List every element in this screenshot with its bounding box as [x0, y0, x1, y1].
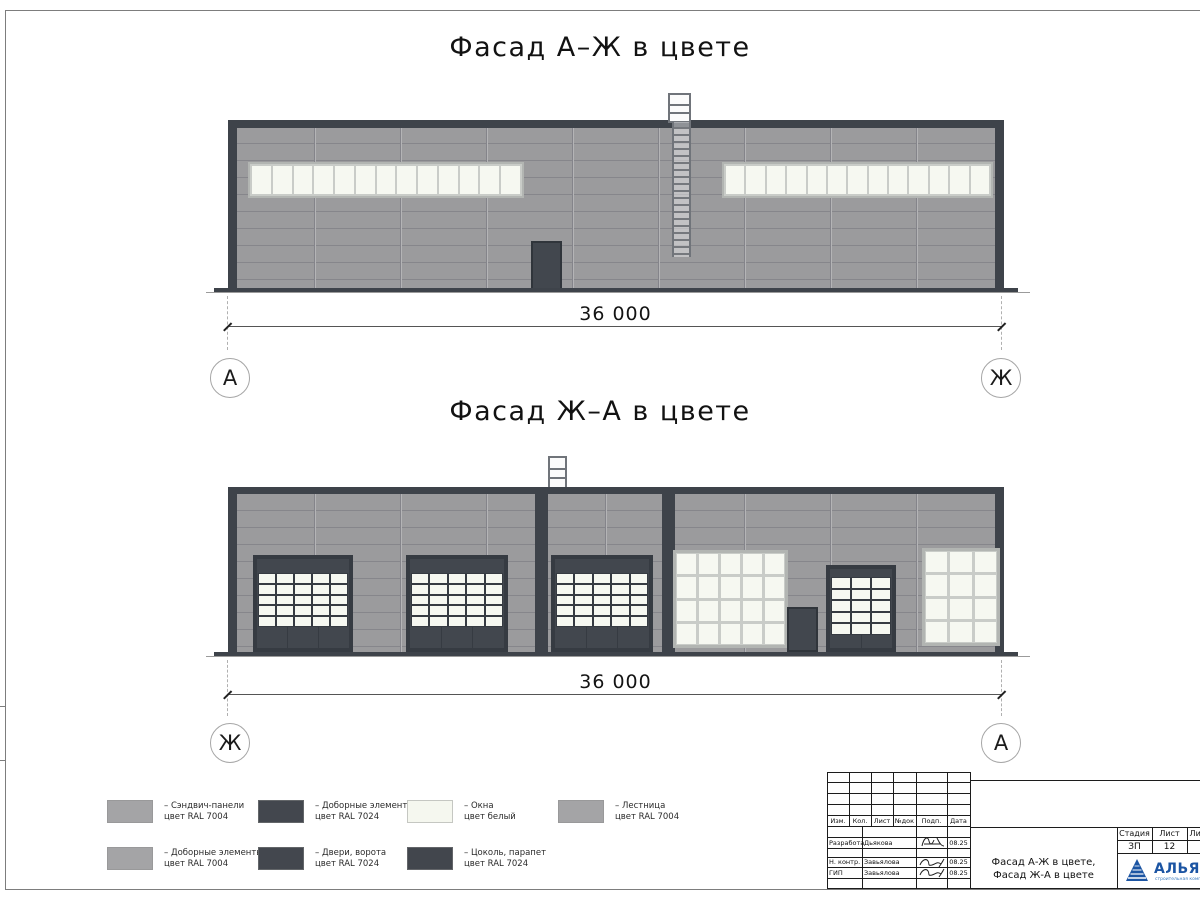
legend-label: – Цоколь, парапетцвет RAL 7024	[464, 847, 546, 870]
axis-letter: Ж	[990, 366, 1013, 390]
window-pane	[926, 622, 947, 642]
window-pane	[765, 577, 784, 597]
window-pane	[486, 585, 502, 594]
window-pane	[412, 606, 428, 615]
panel-joint	[658, 127, 660, 292]
stamp-line	[970, 780, 1200, 781]
parapet	[228, 120, 1004, 128]
window-pane	[612, 574, 628, 583]
window-pane	[594, 585, 610, 594]
axis-circle-zh: Ж	[210, 723, 250, 763]
panel-joint	[916, 127, 918, 292]
window-pane	[677, 577, 696, 597]
window-pane	[950, 622, 971, 642]
ground-line	[206, 292, 1030, 293]
facade-top-title: Фасад А–Ж в цвете	[0, 32, 1200, 63]
window-pane	[294, 166, 313, 194]
legend-label: – Доборные элементыцвет RAL 7004	[164, 847, 263, 870]
rev-col-doc: №док	[893, 815, 916, 826]
window-pane	[872, 613, 890, 623]
window-pane	[975, 552, 996, 572]
window-pane	[828, 166, 846, 194]
dimension-line	[227, 326, 1002, 327]
window-pane	[746, 166, 764, 194]
window-pane	[575, 617, 591, 626]
rev-col-data: Дата	[947, 815, 970, 826]
window-pane	[631, 574, 647, 583]
window-pane	[677, 601, 696, 621]
color-swatch	[407, 847, 453, 870]
dimension-value: 36 000	[228, 303, 1003, 325]
window-pane	[872, 601, 890, 611]
window-pane	[277, 585, 293, 594]
window-pane	[313, 574, 329, 583]
legend-item: – Доборные элементыцвет RAL 7024	[258, 800, 414, 823]
stamp-line	[1117, 853, 1200, 854]
window-pane	[480, 166, 499, 194]
person-name: Дьякова	[862, 837, 918, 848]
gate-bottom-panel	[410, 627, 504, 648]
window-pane	[594, 574, 610, 583]
dimension-value: 36 000	[228, 671, 1003, 693]
window-pane	[699, 624, 718, 644]
stamp-line	[827, 878, 970, 879]
color-swatch	[558, 800, 604, 823]
sheet-value: 12	[1152, 840, 1187, 853]
entrance-door	[531, 241, 562, 292]
window-pane	[852, 590, 870, 600]
drawing-sheet: Фасад А–Ж в цвете Фасад Ж–А в цвете 36 0…	[0, 0, 1200, 900]
roof-ladder-cage	[548, 456, 567, 489]
gate-top-panel	[830, 569, 892, 577]
window-pane	[277, 606, 293, 615]
window-pane	[252, 166, 271, 194]
legend-item: – Двери, воротацвет RAL 7024	[258, 847, 386, 870]
window-pane	[331, 585, 347, 594]
person-name: Завьялова	[862, 867, 918, 878]
window-pane	[449, 596, 465, 605]
window-pane	[331, 574, 347, 583]
window-pane	[869, 166, 887, 194]
window-pane	[677, 554, 696, 574]
color-swatch	[258, 847, 304, 870]
window-pane	[295, 574, 311, 583]
gate-top-panel	[257, 559, 349, 573]
corner-pilaster	[228, 487, 237, 652]
window-pane	[575, 606, 591, 615]
window-pane	[832, 624, 850, 634]
parapet	[228, 487, 1004, 494]
legend-item: – Лестницацвет RAL 7004	[558, 800, 679, 823]
roof-ladder	[672, 122, 691, 257]
window-pane	[501, 166, 520, 194]
window-pane	[331, 596, 347, 605]
legend-item: – Сэндвич-панелицвет RAL 7004	[107, 800, 244, 823]
panel-joint	[916, 494, 918, 652]
window-pane	[486, 574, 502, 583]
roof-ladder-cage	[668, 93, 691, 123]
window-pane	[699, 601, 718, 621]
window-pane	[872, 624, 890, 634]
stamp-line	[827, 888, 1200, 889]
sectional-gate-1	[253, 555, 353, 652]
window-pane	[631, 606, 647, 615]
color-swatch	[407, 800, 453, 823]
window-pane	[852, 601, 870, 611]
frame-tick	[0, 760, 5, 761]
window-pane	[430, 606, 446, 615]
ribbon-window-left	[248, 162, 524, 198]
window-pane	[412, 596, 428, 605]
window-pane	[460, 166, 479, 194]
window-pane	[852, 613, 870, 623]
window-pane	[631, 585, 647, 594]
dimension-line	[227, 694, 1002, 695]
panel-joint	[400, 494, 402, 652]
window-pane	[449, 585, 465, 594]
window-pane	[430, 585, 446, 594]
panel-joint	[314, 127, 316, 292]
window-pane	[314, 166, 333, 194]
gate-glazing	[556, 573, 648, 627]
rev-col-podp: Подп.	[916, 815, 947, 826]
window-pane	[767, 166, 785, 194]
window-pane	[950, 552, 971, 572]
window-pane	[612, 617, 628, 626]
window-pane	[594, 606, 610, 615]
window-pane	[721, 624, 740, 644]
window-pane	[467, 617, 483, 626]
window-pane	[975, 575, 996, 595]
window-pane	[852, 578, 870, 588]
window-pane	[449, 574, 465, 583]
window-pane	[449, 606, 465, 615]
window-pane	[486, 617, 502, 626]
window-pane	[486, 596, 502, 605]
window-pane	[721, 601, 740, 621]
frame-top-line	[5, 10, 1200, 11]
wall-panels	[228, 120, 1004, 292]
legend-label: – Окнацвет белый	[464, 800, 516, 823]
window-pane	[557, 585, 573, 594]
window-pane	[356, 166, 375, 194]
corner-pilaster	[228, 120, 237, 292]
window-pane	[313, 585, 329, 594]
window-pane	[594, 596, 610, 605]
ground-line	[206, 656, 1030, 657]
signature	[918, 867, 946, 878]
small-gate	[826, 565, 896, 652]
window-pane	[259, 574, 275, 583]
signature	[918, 834, 946, 850]
window-pane	[612, 596, 628, 605]
window-pane	[295, 606, 311, 615]
window-pane	[295, 585, 311, 594]
window-pane	[950, 166, 968, 194]
gate-bottom-panel	[257, 627, 349, 648]
window-pane	[975, 622, 996, 642]
panel-joint	[572, 127, 574, 292]
stage-label: Стадия	[1117, 827, 1152, 840]
panel-joint	[830, 127, 832, 292]
panel-joint	[400, 127, 402, 292]
frame-bottom-line	[5, 889, 1200, 890]
rev-col-list: Лист	[871, 815, 893, 826]
window-pane	[612, 606, 628, 615]
window-pane	[743, 577, 762, 597]
window-pane	[699, 554, 718, 574]
window-pane	[575, 596, 591, 605]
window-pane	[430, 617, 446, 626]
tall-window	[922, 548, 1000, 646]
entrance-door	[787, 607, 818, 652]
window-pane	[467, 585, 483, 594]
window-pane	[971, 166, 989, 194]
company-logo-icon	[1125, 858, 1149, 882]
window-pane	[889, 166, 907, 194]
window-pane	[765, 554, 784, 574]
window-pane	[313, 606, 329, 615]
rev-col-izm: Изм.	[827, 815, 849, 826]
window-pane	[575, 585, 591, 594]
window-pane	[439, 166, 458, 194]
window-pane	[259, 596, 275, 605]
window-pane	[412, 585, 428, 594]
window-pane	[259, 585, 275, 594]
window-pane	[808, 166, 826, 194]
window-pane	[467, 606, 483, 615]
axis-letter: А	[994, 731, 1008, 755]
gate-bottom-panel	[555, 627, 649, 648]
window-pane	[277, 574, 293, 583]
legend-label: – Двери, воротацвет RAL 7024	[315, 847, 386, 870]
sign-date: 08.25	[947, 837, 970, 848]
window-pane	[295, 596, 311, 605]
gate-glazing	[411, 573, 503, 627]
window-pane	[743, 624, 762, 644]
window-pane	[430, 596, 446, 605]
window-pane	[852, 624, 870, 634]
sheet-label: Лист	[1152, 827, 1187, 840]
window-pane	[612, 585, 628, 594]
ribbon-window-right	[722, 162, 993, 198]
role-label: Разработал	[827, 837, 864, 848]
window-pane	[430, 574, 446, 583]
window-pane	[926, 552, 947, 572]
facade-a-zh	[228, 120, 1004, 292]
window-pane	[412, 574, 428, 583]
window-pane	[950, 575, 971, 595]
legend-item: – Цоколь, парапетцвет RAL 7024	[407, 847, 546, 870]
window-pane	[418, 166, 437, 194]
window-pane	[259, 617, 275, 626]
axis-circle-a: А	[981, 723, 1021, 763]
stamp-line	[970, 772, 971, 889]
window-pane	[832, 590, 850, 600]
window-pane	[926, 599, 947, 619]
window-pane	[926, 575, 947, 595]
gate-bottom-panel	[830, 635, 892, 648]
frame-left-line	[5, 10, 6, 889]
window-pane	[273, 166, 292, 194]
window-pane	[909, 166, 927, 194]
company-logo-text: АЛЬЯНС	[1154, 861, 1200, 877]
doc-title: Фасад А-Ж в цвете, Фасад Ж-А в цвете	[972, 856, 1115, 882]
window-pane	[557, 606, 573, 615]
stamp-line	[827, 848, 970, 849]
role-label: Н. контр.	[827, 857, 864, 867]
window-pane	[721, 577, 740, 597]
window-pane	[872, 590, 890, 600]
window-pane	[594, 617, 610, 626]
rev-col-kol: Кол.	[849, 815, 871, 826]
axis-circle-a: А	[210, 358, 250, 398]
window-pane	[335, 166, 354, 194]
axis-letter: Ж	[219, 731, 242, 755]
gate-top-panel	[410, 559, 504, 573]
window-pane	[467, 596, 483, 605]
person-name: Завьялова	[862, 857, 918, 867]
window-pane	[832, 613, 850, 623]
window-pane	[259, 606, 275, 615]
facade-bottom-title: Фасад Ж–А в цвете	[0, 396, 1200, 427]
corner-pilaster	[995, 120, 1004, 292]
color-swatch	[258, 800, 304, 823]
stage-value: ЗП	[1117, 840, 1152, 853]
window-pane	[377, 166, 396, 194]
window-pane	[575, 574, 591, 583]
company-logo-tagline: строительная компания	[1155, 877, 1200, 882]
color-swatch	[107, 800, 153, 823]
axis-letter: А	[223, 366, 237, 390]
window-pane	[331, 606, 347, 615]
legend-item: – Доборные элементыцвет RAL 7004	[107, 847, 263, 870]
window-pane	[950, 599, 971, 619]
window-pane	[295, 617, 311, 626]
panel-joint	[486, 127, 488, 292]
window-pane	[277, 617, 293, 626]
window-pane	[557, 596, 573, 605]
window-pane	[721, 554, 740, 574]
legend-label: – Доборные элементыцвет RAL 7024	[315, 800, 414, 823]
facade-zh-a	[228, 487, 1004, 652]
panel-joint	[744, 127, 746, 292]
legend-label: – Сэндвич-панелицвет RAL 7004	[164, 800, 244, 823]
window-pane	[699, 577, 718, 597]
window-pane	[277, 596, 293, 605]
window-pane	[832, 578, 850, 588]
window-pane	[631, 596, 647, 605]
window-pane	[557, 617, 573, 626]
sign-date: 08.25	[947, 867, 970, 878]
window-pane	[313, 596, 329, 605]
sectional-gate-3	[551, 555, 653, 652]
window-pane	[848, 166, 866, 194]
window-pane	[313, 617, 329, 626]
window-pane	[331, 617, 347, 626]
sign-date: 08.25	[947, 857, 970, 867]
window-pane	[486, 606, 502, 615]
large-window	[673, 550, 788, 648]
color-swatch	[107, 847, 153, 870]
axis-circle-zh: Ж	[981, 358, 1021, 398]
window-pane	[412, 617, 428, 626]
role-label: ГИП	[827, 867, 864, 878]
window-pane	[677, 624, 696, 644]
window-pane	[397, 166, 416, 194]
legend-item: – Окнацвет белый	[407, 800, 516, 823]
window-pane	[832, 601, 850, 611]
frame-tick	[0, 706, 5, 707]
window-pane	[743, 554, 762, 574]
stamp-line	[827, 826, 970, 827]
gate-glazing	[258, 573, 348, 627]
window-pane	[743, 601, 762, 621]
window-pane	[467, 574, 483, 583]
window-pane	[787, 166, 805, 194]
gate-top-panel	[555, 559, 649, 573]
legend-label: – Лестницацвет RAL 7004	[615, 800, 679, 823]
window-pane	[872, 578, 890, 588]
window-pane	[726, 166, 744, 194]
sectional-gate-2	[406, 555, 508, 652]
sheets-value: 2	[1187, 840, 1200, 853]
window-pane	[765, 601, 784, 621]
window-pane	[975, 599, 996, 619]
window-pane	[930, 166, 948, 194]
window-pane	[557, 574, 573, 583]
sheets-label: Листов	[1187, 827, 1200, 840]
window-pane	[765, 624, 784, 644]
gate-glazing	[831, 577, 891, 635]
window-pane	[631, 617, 647, 626]
mid-pilaster	[535, 487, 548, 652]
window-pane	[449, 617, 465, 626]
